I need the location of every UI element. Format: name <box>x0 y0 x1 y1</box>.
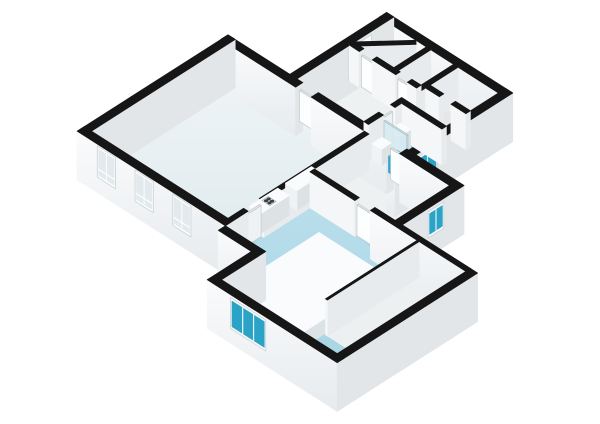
wall-closet-d2 <box>451 101 471 149</box>
structure-layer <box>77 13 513 412</box>
floorplan-3d-view <box>0 0 600 424</box>
floorplan-svg <box>0 0 600 424</box>
